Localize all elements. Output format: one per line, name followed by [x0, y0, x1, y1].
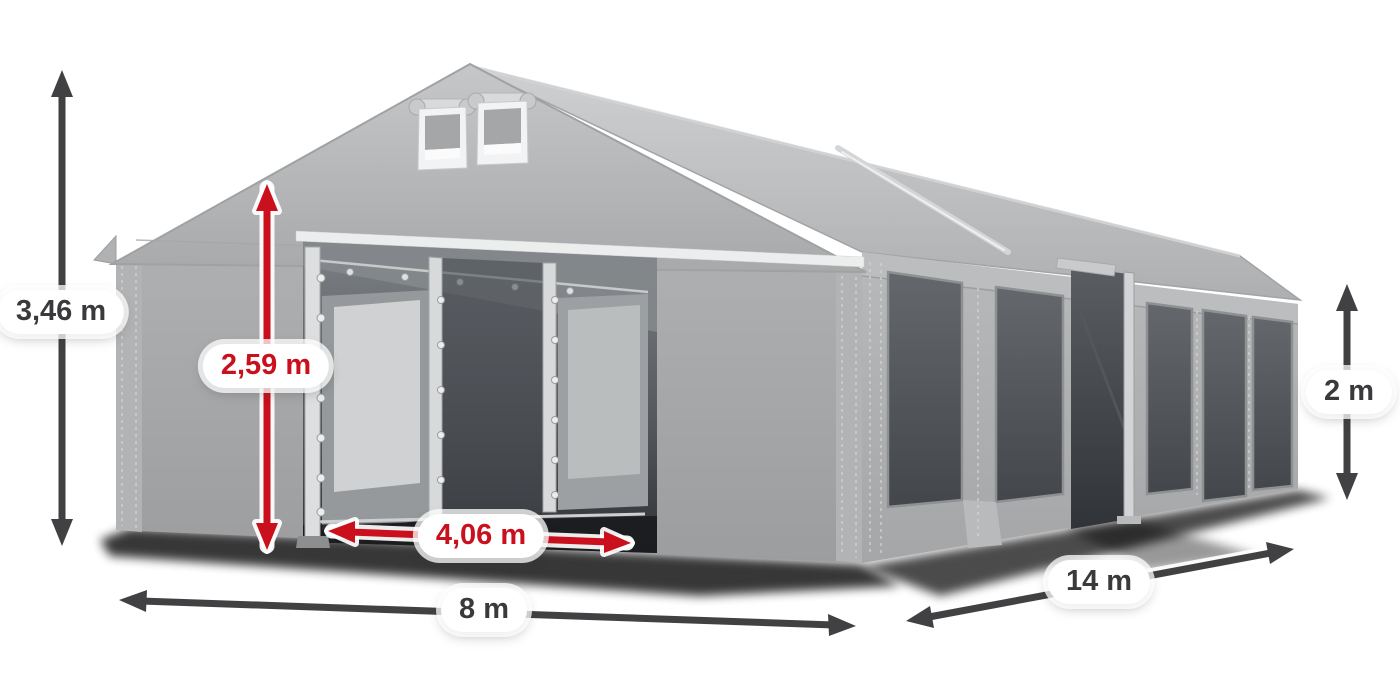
side-window	[1203, 310, 1246, 501]
dimension-label-side-length: 14 m	[1048, 560, 1150, 604]
pole-base	[1117, 516, 1141, 524]
inner-door-panel	[558, 294, 648, 510]
side-window	[1147, 303, 1192, 494]
vent-sill	[425, 148, 460, 160]
dimension-label-front-width: 8 m	[441, 588, 527, 632]
gable-vent-left	[409, 99, 475, 170]
dimension-label-side-wall-height: 2 m	[1306, 370, 1392, 414]
door-frame-pole	[543, 263, 559, 512]
gable-vent-right	[468, 93, 536, 165]
front-right-corner-strip	[836, 271, 862, 563]
inner-door-panel	[322, 290, 432, 530]
tent-dimension-diagram: 3,46 m 2,59 m 4,06 m 8 m 14 m 2 m	[0, 0, 1400, 700]
inner-door-window	[334, 300, 420, 492]
interior-dark	[442, 258, 545, 518]
dimension-label-entrance-height: 2,59 m	[203, 344, 329, 388]
side-window	[996, 287, 1063, 502]
vent-sill	[484, 143, 521, 155]
vent-mesh	[425, 114, 460, 150]
vent-mesh	[484, 108, 521, 145]
front-entrance	[296, 240, 657, 553]
dimension-label-entrance-width: 4,06 m	[418, 514, 544, 558]
roof-overhang-fold	[94, 236, 116, 264]
side-pole	[1124, 272, 1134, 521]
inner-door-window	[568, 305, 640, 479]
dimension-label-total-height: 3,46 m	[0, 290, 124, 334]
pole-base	[296, 536, 330, 548]
mullion-foot	[963, 500, 1002, 548]
side-window	[888, 272, 962, 507]
side-window	[1253, 317, 1292, 490]
